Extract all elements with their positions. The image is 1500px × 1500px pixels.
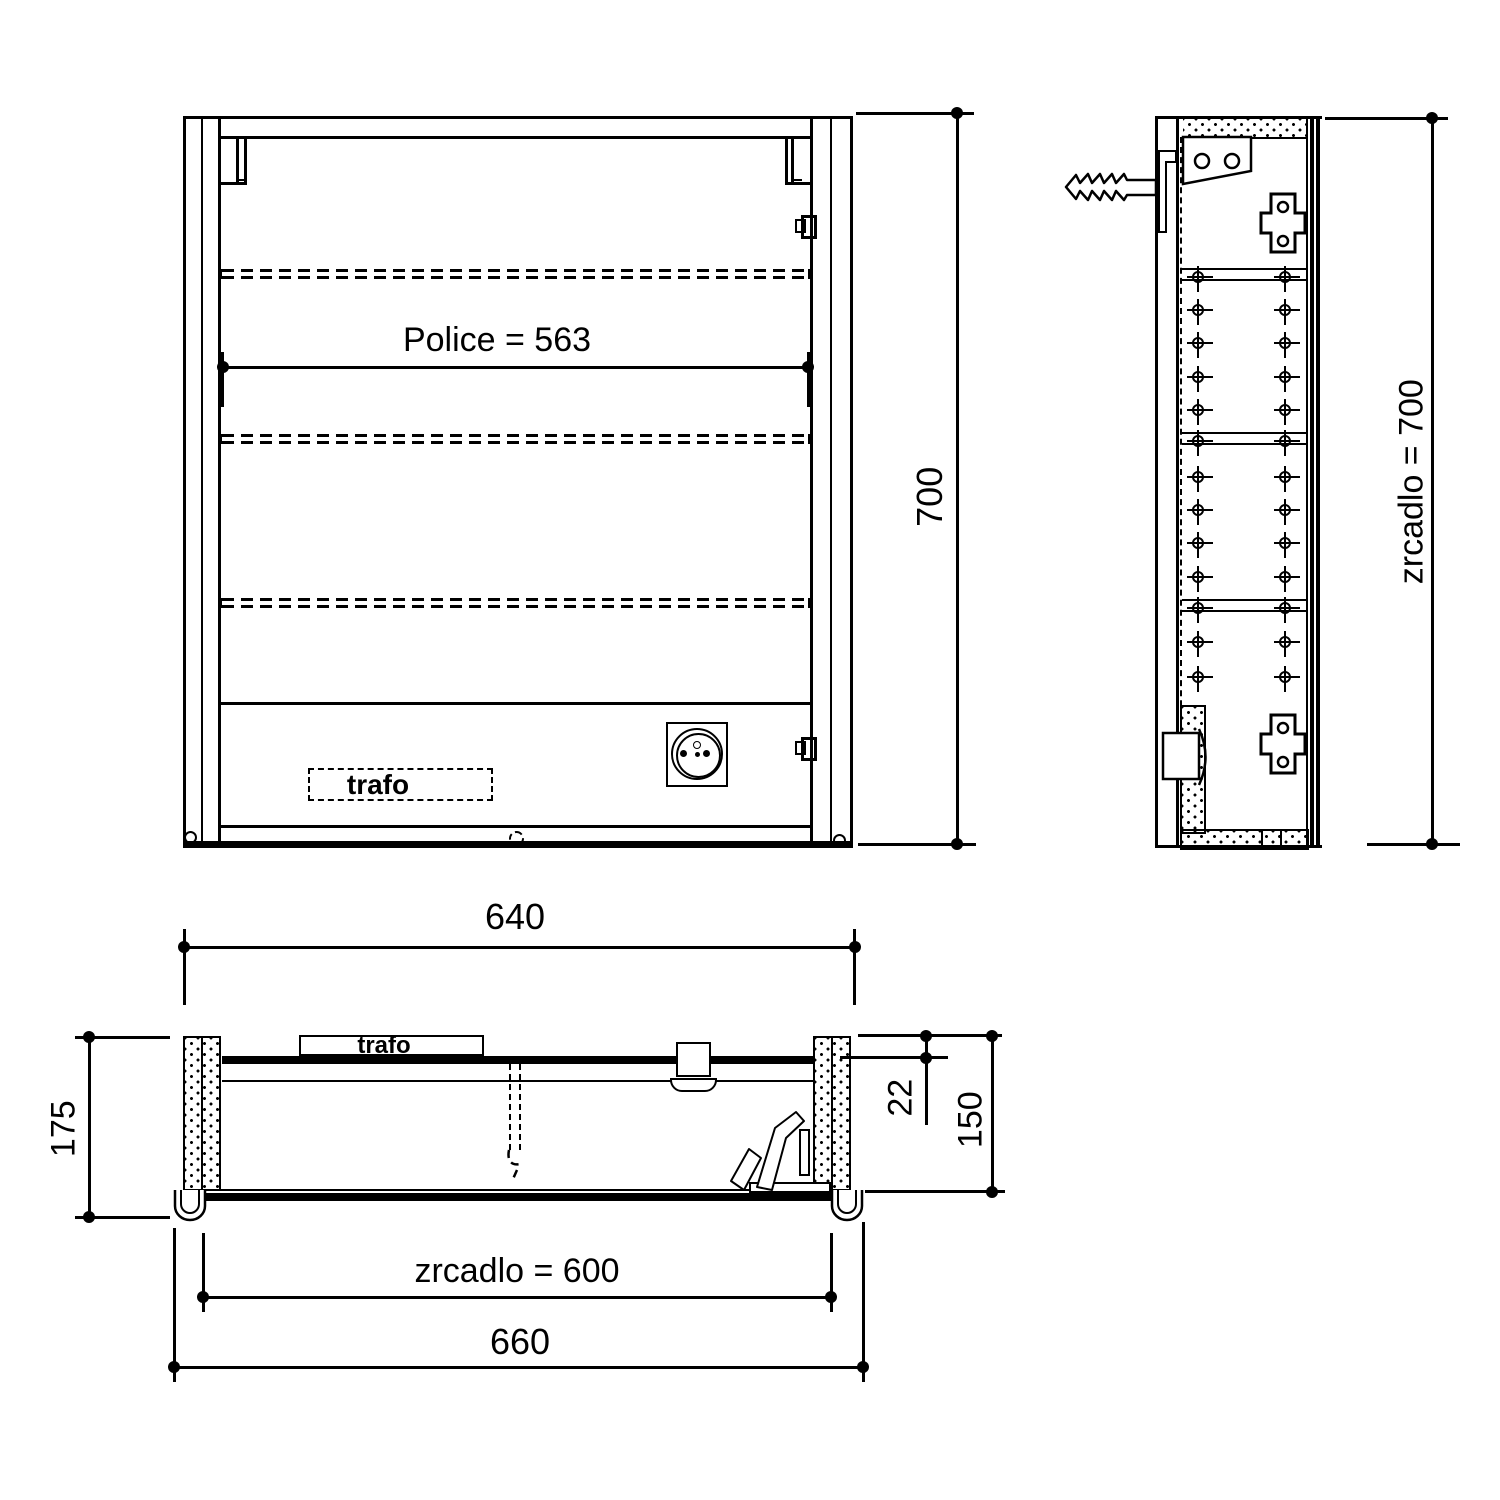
- drawing-line: [925, 1035, 928, 1125]
- hanging-hook: [1159, 151, 1176, 232]
- drawing-line: [219, 702, 811, 705]
- drawing-line: [181, 1190, 199, 1213]
- drawing-line: [850, 116, 853, 848]
- shelf-dim-label: Police = 563: [327, 322, 667, 359]
- drawing-line: [219, 825, 811, 828]
- drawing-line: [1155, 116, 1158, 848]
- drawing-line: [236, 179, 247, 181]
- drawing-line: [991, 1035, 994, 1192]
- drawing-line: [1367, 843, 1460, 846]
- center-hole-hidden: [509, 831, 524, 846]
- shelf-pin-hole-icon: [1279, 435, 1291, 447]
- drawing-line: [183, 116, 186, 848]
- shelf-pin-hole-icon: [1279, 636, 1291, 648]
- trafo-label-front: trafo: [308, 770, 448, 801]
- drawing-line: [920, 1052, 932, 1064]
- drawing-line: [1195, 154, 1209, 168]
- shelf-pin-hole-icon: [1192, 471, 1204, 483]
- shelf-pin-hole-icon: [1192, 337, 1204, 349]
- shelf-pin-hole-icon: [1192, 271, 1204, 283]
- technical-drawing-canvas: Police = 563 trafo 700: [0, 0, 1500, 1500]
- drawing-line: [223, 366, 809, 369]
- drawing-line: [791, 179, 802, 181]
- drawing-line: [513, 1170, 517, 1179]
- shelf-pin-hole-icon: [1279, 602, 1291, 614]
- drawing-line: [201, 1036, 203, 1192]
- drawing-line: [203, 1296, 832, 1299]
- drawing-line: [1426, 112, 1438, 124]
- drawing-line: [88, 1036, 91, 1218]
- drawing-line: [986, 1030, 998, 1042]
- drawing-line: [831, 1036, 833, 1192]
- power-cable-hidden: [509, 1064, 521, 1150]
- drawing-line: [508, 1150, 520, 1164]
- shelf-pin-hole-icon: [1279, 671, 1291, 683]
- fixing-hole-left: [184, 831, 197, 844]
- drawing-line: [183, 116, 853, 119]
- drawing-details-layer: [0, 0, 1500, 1500]
- drawing-line: [1278, 723, 1288, 733]
- shelf-position-row: [219, 269, 811, 279]
- hinge-arm: [731, 1149, 761, 1190]
- shelf-pin-hole-icon: [1192, 435, 1204, 447]
- hinge-cup-right: [832, 1190, 862, 1220]
- drawing-line: [853, 929, 856, 1005]
- drawing-line: [862, 1222, 865, 1382]
- shelf-pin-hole-icon: [1279, 571, 1291, 583]
- wall-bracket: [1183, 137, 1251, 184]
- drawing-line: [785, 137, 788, 185]
- hinge-plate-bottom: [1261, 715, 1305, 773]
- top-panel-section: [1183, 119, 1308, 139]
- side-bottom-strip: [1180, 829, 1309, 850]
- shelf-pin-hole-icon: [1279, 304, 1291, 316]
- drawing-line: [830, 116, 832, 848]
- drawing-line: [956, 113, 959, 845]
- drawing-line: [680, 750, 687, 757]
- drawing-line: [184, 946, 855, 949]
- overall-width-dim-label: 660: [440, 1322, 600, 1362]
- drawing-line: [695, 752, 700, 757]
- drawing-line: [676, 1042, 711, 1077]
- shelf-pin-hole-icon: [1279, 271, 1291, 283]
- drawing-line: [1278, 202, 1288, 212]
- mirror-width-dim-label: zrcadlo = 600: [327, 1253, 707, 1290]
- drawing-line: [951, 838, 963, 850]
- shelf-pin-hole-icon: [1192, 304, 1204, 316]
- shelf-pin-hole-icon: [1192, 671, 1204, 683]
- shelf-pin-hole-icon: [1192, 371, 1204, 383]
- drawing-line: [1431, 118, 1434, 845]
- shelf-pin-hole-icon: [1279, 537, 1291, 549]
- drawing-line: [857, 1361, 869, 1373]
- drawing-line: [1261, 829, 1263, 846]
- drawing-line: [221, 352, 224, 407]
- drawing-line: [1225, 154, 1239, 168]
- shelf-pin-hole-icon: [1279, 504, 1291, 516]
- shelf-pin-hole-icon: [1192, 537, 1204, 549]
- drawing-line: [951, 107, 963, 119]
- mirror-section: [1310, 116, 1314, 848]
- drawing-line: [168, 1361, 180, 1373]
- drawing-line: [1280, 829, 1282, 846]
- drawing-line: [807, 352, 810, 407]
- drawing-line: [1426, 838, 1438, 850]
- panel-thickness-dim-label: 22: [882, 1073, 919, 1123]
- drawing-line: [197, 1291, 209, 1303]
- drawing-line: [219, 182, 247, 185]
- fixing-hole-right: [833, 834, 846, 847]
- drawing-line: [795, 219, 806, 233]
- shelf-pin-hole-icon: [1192, 571, 1204, 583]
- drawing-line: [1278, 757, 1288, 767]
- shelf-position-row: [219, 434, 811, 444]
- drawing-line: [865, 1190, 1005, 1193]
- drawing-line: [795, 741, 806, 755]
- shelf-pin-hole-icon: [1192, 504, 1204, 516]
- drawing-line: [1278, 236, 1288, 246]
- drawing-line: [986, 1186, 998, 1198]
- drawing-line: [203, 1193, 832, 1201]
- width-dim-label: 640: [430, 897, 600, 937]
- shelf-pin-hole-icon: [1192, 404, 1204, 416]
- drawing-line: [201, 116, 203, 848]
- shelf-position-row: [219, 598, 811, 608]
- drawing-line: [670, 1078, 717, 1092]
- drawing-line: [785, 182, 813, 185]
- drawing-line: [173, 1228, 176, 1382]
- plan-mirror-door: [203, 1189, 832, 1191]
- trafo-label-plan: trafo: [299, 1033, 469, 1059]
- shelf-pin-hole-icon: [1279, 471, 1291, 483]
- shelf-pin-hole-icon: [1279, 371, 1291, 383]
- side-lower-block: [1180, 705, 1206, 834]
- drawing-line: [244, 137, 247, 185]
- drawing-line: [219, 136, 811, 139]
- wall-screw-icon: [1066, 174, 1156, 200]
- drawing-line: [83, 1031, 95, 1043]
- drawing-line: [703, 750, 710, 757]
- shelf-pin-hole-icon: [1279, 337, 1291, 349]
- height-dim-label: 700: [910, 457, 950, 537]
- drawing-line: [838, 1190, 856, 1213]
- inner-depth-dim-label: 150: [952, 1085, 989, 1155]
- hinge-arm: [757, 1112, 804, 1190]
- drawing-line: [236, 137, 239, 182]
- shelf-pin-hole-icon: [1192, 636, 1204, 648]
- drawing-line: [1176, 116, 1179, 848]
- drawing-line: [825, 1291, 837, 1303]
- shelf-pin-hole-icon: [1192, 602, 1204, 614]
- drawing-line: [800, 1130, 809, 1175]
- drawing-line: [174, 1366, 864, 1369]
- drawing-line: [218, 116, 221, 848]
- drawing-line: [920, 1030, 932, 1042]
- drawing-line: [791, 137, 794, 182]
- depth-dim-label: 175: [45, 1094, 82, 1164]
- drawing-line: [693, 741, 701, 749]
- drawing-line: [183, 929, 186, 1005]
- shelf-pin-hole-icon: [1279, 404, 1291, 416]
- drawing-line: [1316, 116, 1320, 848]
- mirror-height-dim-label: zrcadlo = 700: [1393, 372, 1430, 592]
- drawing-line: [1306, 118, 1308, 848]
- drawing-line: [83, 1211, 95, 1223]
- hinge-cup-left: [175, 1190, 205, 1220]
- hinge-plate-top: [1261, 194, 1305, 252]
